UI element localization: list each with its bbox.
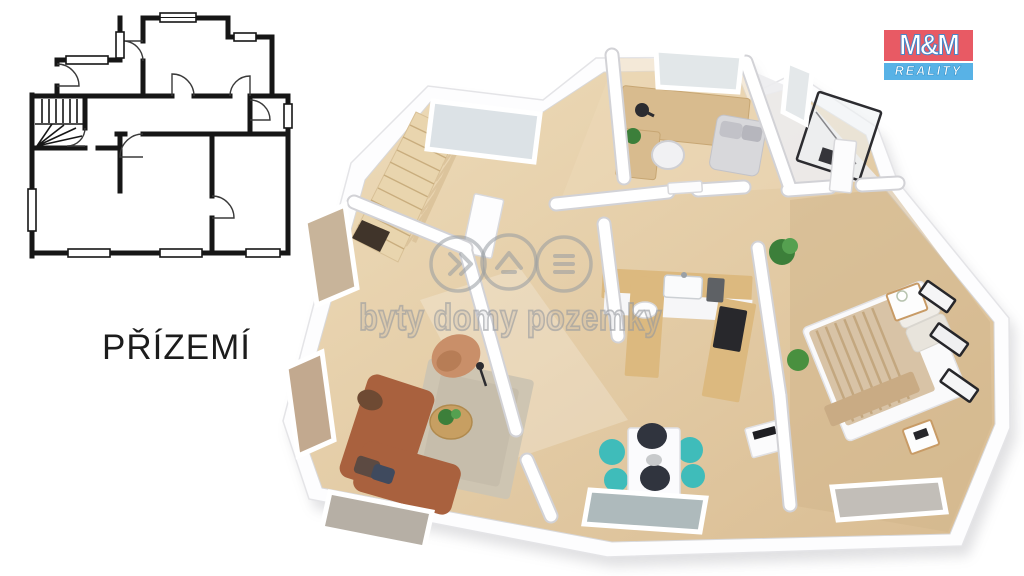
- office-door: [668, 181, 703, 194]
- stair-window: [427, 101, 540, 162]
- dining-window-bottom: [584, 490, 706, 532]
- living-window-left: [305, 205, 357, 305]
- floorplan-3d: byty domy pozemky: [0, 0, 1024, 576]
- wall-bathroom-south: [788, 187, 830, 190]
- dining-chair-teal: [599, 439, 625, 465]
- office-chair: [652, 141, 684, 169]
- logo-reality-text: REALITY: [895, 65, 962, 78]
- wall-corridor: [698, 187, 744, 190]
- coffee-machine: [706, 277, 725, 302]
- logo-top-band: M&M: [884, 30, 973, 61]
- dining-chair-dark: [640, 465, 670, 491]
- table-decor: [646, 454, 662, 466]
- bathroom-window: [783, 62, 812, 124]
- partition-plant-ball: [787, 349, 809, 371]
- dining-chair-teal: [681, 464, 705, 488]
- mm-reality-logo: M&M REALITY: [884, 30, 973, 80]
- table-plant: [451, 409, 461, 419]
- logo-mm-text: M&M: [899, 31, 957, 59]
- faucet: [681, 272, 687, 278]
- wall-bathroom-south: [862, 183, 898, 185]
- flower-vase: [897, 291, 907, 301]
- partition-plant: [782, 238, 798, 254]
- watermark-text: byty domy pozemky: [359, 297, 662, 338]
- kitchen-sink: [663, 275, 702, 299]
- table-plant: [438, 409, 454, 425]
- office-window: [656, 50, 742, 92]
- dining-chair-teal: [604, 468, 628, 492]
- real-estate-floorplan-page: PŘÍZEMÍ: [0, 0, 1024, 576]
- dining-chair-dark: [637, 423, 667, 449]
- bathroom-door: [829, 139, 856, 193]
- floor-lamp-head: [476, 362, 484, 370]
- dining-chair-teal: [677, 437, 703, 463]
- bedroom-window-bottom: [832, 480, 946, 520]
- logo-bottom-band: REALITY: [884, 61, 973, 80]
